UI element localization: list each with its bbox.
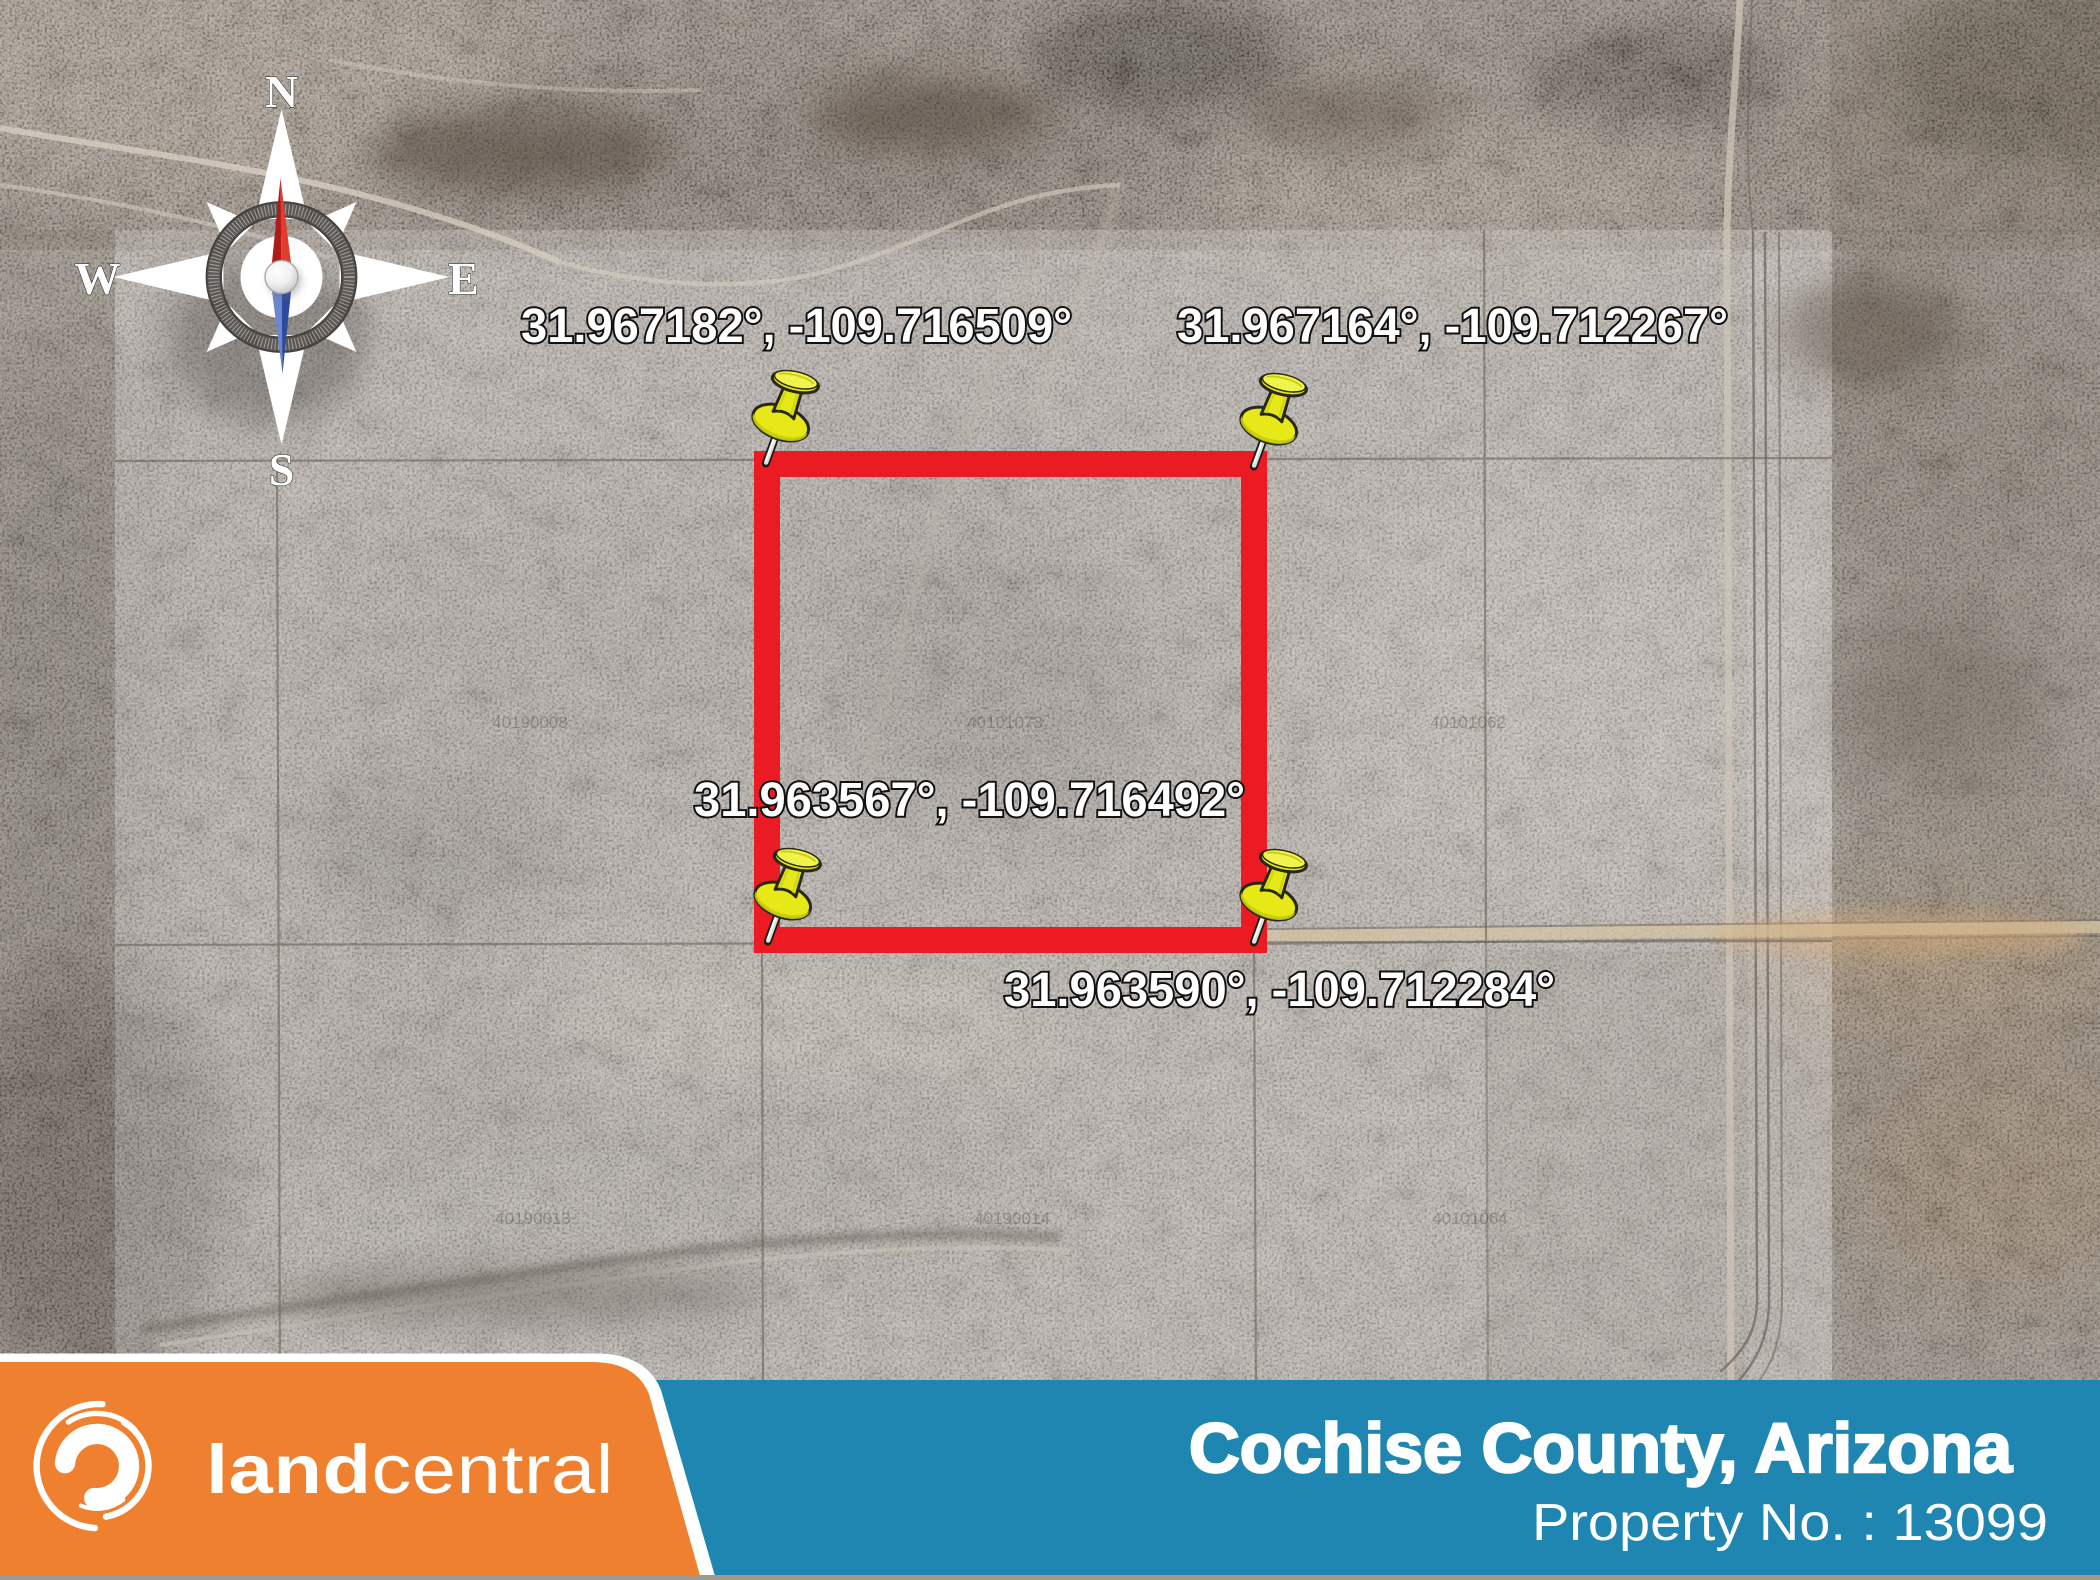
svg-text:40190014: 40190014 <box>974 1209 1050 1228</box>
svg-text:40101073: 40101073 <box>967 713 1043 732</box>
svg-text:40101062: 40101062 <box>1430 713 1506 732</box>
svg-text:40101064: 40101064 <box>1432 1209 1508 1228</box>
svg-text:S: S <box>269 444 295 495</box>
svg-text:N: N <box>265 66 298 117</box>
svg-text:Cochise County, Arizona: Cochise County, Arizona <box>1189 1409 2013 1487</box>
svg-text:31.963590°, -109.712284°: 31.963590°, -109.712284° <box>1004 964 1555 1017</box>
svg-text:landcentral: landcentral <box>206 1431 614 1508</box>
svg-text:40190008: 40190008 <box>492 713 568 732</box>
svg-text:W: W <box>75 253 121 304</box>
svg-text:40190013: 40190013 <box>495 1209 571 1228</box>
svg-text:E: E <box>448 253 479 304</box>
svg-text:31.967164°, -109.712267°: 31.967164°, -109.712267° <box>1177 300 1728 353</box>
svg-text:31.967182°, -109.716509°: 31.967182°, -109.716509° <box>521 300 1072 353</box>
svg-text:Property No. : 13099: Property No. : 13099 <box>1532 1494 2048 1552</box>
svg-text:31.963567°, -109.716492°: 31.963567°, -109.716492° <box>694 774 1245 827</box>
